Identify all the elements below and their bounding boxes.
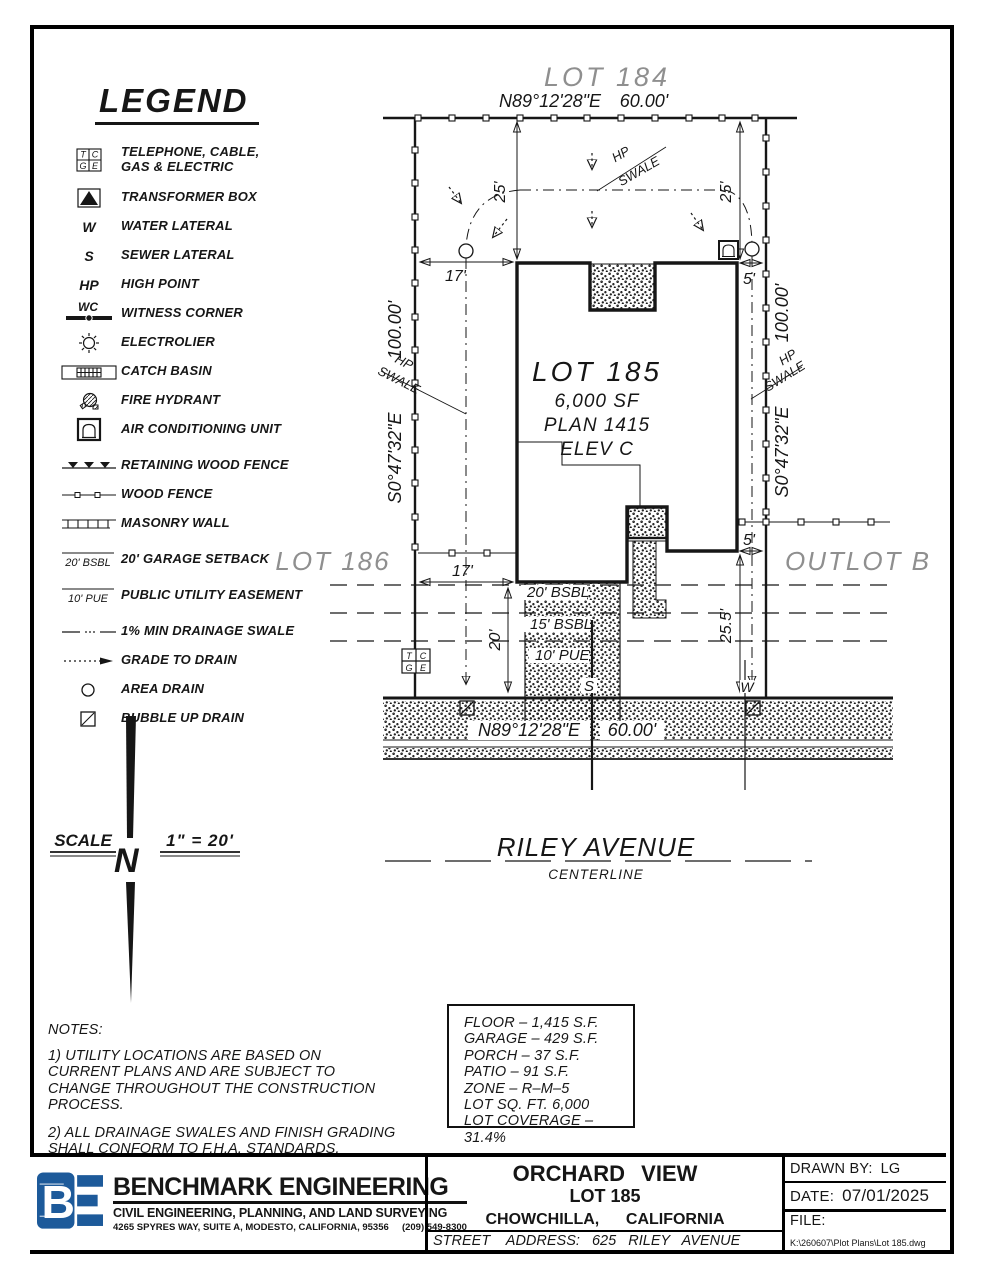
pue-icon: 10' PUE — [57, 583, 121, 609]
stat-lot-sqft: LOT SQ. FT. 6,000 — [464, 1097, 633, 1113]
outlot-b-label: OUTLOT B — [785, 546, 931, 576]
project-block: ORCHARD VIEW LOT 185 CHOWCHILLA, CALIFOR… — [425, 1157, 785, 1250]
elev-label: ELEV C — [560, 439, 634, 460]
dim-20: 20' — [487, 629, 504, 652]
tcge-utility-box: T C G E — [402, 649, 430, 673]
area-drain-icon — [57, 677, 121, 703]
masonry-wall-icon — [57, 511, 121, 537]
legend-item: MASONRY WALL — [57, 509, 357, 538]
note-1: 1) UTILITY LOCATIONS ARE BASED ON CURREN… — [48, 1048, 396, 1113]
grade-to-drain-arrows — [449, 153, 703, 237]
centerline-label: CENTERLINE — [548, 867, 644, 882]
project-name: ORCHARD VIEW — [428, 1161, 782, 1187]
lot-185-label: LOT 185 — [532, 356, 662, 387]
drawn-by-value: LG — [881, 1161, 901, 1177]
date-value: 07/01/2025 — [842, 1186, 929, 1206]
dim-25-5: 25.5' — [718, 608, 735, 644]
svg-text:T: T — [80, 150, 87, 160]
ac-unit-icon — [57, 416, 121, 444]
legend-item: WC WITNESS CORNER — [57, 299, 357, 328]
scale-value: 1" = 20' — [166, 831, 234, 850]
pue10-label: 10' PUE — [535, 647, 591, 664]
stat-garage: GARAGE – 429 S.F. — [464, 1031, 633, 1047]
svg-text:20' BSBL: 20' BSBL — [64, 557, 111, 569]
file-row: FILE: K:\260607\Plot Plans\Lot 185.dwg — [785, 1212, 946, 1250]
drainage-swale-icon — [57, 619, 121, 645]
legend-item: TRANSFORMER BOX — [57, 183, 357, 212]
date-label: DATE: — [790, 1188, 834, 1205]
svg-text:E: E — [420, 663, 427, 673]
stat-porch: PORCH – 37 S.F. — [464, 1048, 633, 1064]
scale-block: SCALE 1" = 20' N — [50, 716, 240, 1003]
water-label: W — [740, 679, 755, 695]
legend-item: WOOD FENCE — [57, 480, 357, 509]
legend-item: 20' BSBL 20' GARAGE SETBACK — [57, 545, 357, 574]
firm-block: B BENCHMARK ENGINEERING CIVIL ENGINEERIN… — [30, 1157, 425, 1250]
project-lot: LOT 185 — [428, 1187, 782, 1207]
bearing-left: S0°47'32"E — [385, 411, 405, 503]
legend-item: AREA DRAIN — [57, 675, 357, 704]
scale-label: SCALE — [54, 831, 112, 850]
benchmark-logo-icon: B — [37, 1171, 103, 1236]
ac-unit-symbol — [719, 241, 738, 259]
north-arrow-icon: N — [114, 716, 140, 1003]
date-row: DATE: 07/01/2025 — [785, 1183, 946, 1212]
bsbl20-label: 20' BSBL — [526, 584, 589, 601]
project-city: CHOWCHILLA, CALIFORNIA — [428, 1211, 782, 1230]
dim-5-bottom: 5' — [743, 532, 756, 549]
legend-item: T C G E TELEPHONE, CABLE, GAS & ELECTRIC — [57, 137, 357, 183]
svg-text:C: C — [92, 150, 99, 160]
hp-label: HP — [609, 143, 632, 165]
bsbl15-label: 15' BSBL — [530, 616, 592, 633]
svg-text:G: G — [79, 161, 86, 171]
bearing-bottom: N89°12'28"E — [478, 720, 581, 740]
legend-item: AIR CONDITIONING UNIT — [57, 415, 357, 444]
porch — [628, 507, 667, 538]
legend-item: GRADE TO DRAIN — [57, 646, 357, 675]
legend-item: RETAINING WOOD FENCE — [57, 451, 357, 480]
side-right: 100.00' — [772, 283, 792, 342]
svg-text:C: C — [420, 651, 427, 661]
svg-text:G: G — [405, 663, 412, 673]
title-block: B BENCHMARK ENGINEERING CIVIL ENGINEERIN… — [30, 1153, 946, 1250]
dim-17-top: 17' — [445, 268, 467, 285]
drawn-by-row: DRAWN BY: LG — [785, 1157, 946, 1183]
stat-coverage: LOT COVERAGE – 31.4% — [464, 1113, 633, 1146]
legend-item: CATCH BASIN — [57, 357, 357, 386]
firm-address: 4265 SPYRES WAY, SUITE A, MODESTO, CALIF… — [113, 1222, 467, 1233]
drawn-by-label: DRAWN BY: — [790, 1161, 873, 1177]
electrolier-icon — [57, 330, 121, 356]
stat-floor: FLOOR – 1,415 S.F. — [464, 1015, 633, 1031]
dim-5-top: 5' — [743, 271, 756, 288]
wood-fence-icon — [57, 482, 121, 508]
firm-tagline: CIVIL ENGINEERING, PLANNING, AND LAND SU… — [113, 1206, 467, 1220]
bearing-right: S0°47'32"E — [772, 405, 792, 497]
file-label: FILE: — [790, 1213, 826, 1229]
bubble-up-drain-icon — [57, 706, 121, 732]
svg-text:10' PUE: 10' PUE — [68, 593, 109, 605]
plot-plan-page: { "legend": { "title": "LEGEND", "sym": … — [0, 0, 984, 1279]
lot-stats-box: FLOOR – 1,415 S.F. GARAGE – 429 S.F. POR… — [447, 1004, 635, 1128]
plan-num-label: PLAN 1415 — [544, 415, 650, 436]
legend-item: HP HIGH POINT — [57, 270, 357, 299]
notes-title: NOTES: — [48, 1022, 396, 1038]
legend-item: ELECTROLIER — [57, 328, 357, 357]
stat-zone: ZONE – R–M–5 — [464, 1081, 633, 1097]
garage-setback-icon: 20' BSBL — [57, 547, 121, 573]
catch-basin-icon — [57, 359, 121, 385]
sewer-lateral-icon: S — [57, 243, 121, 269]
water-lateral-icon: W — [57, 214, 121, 240]
dim-25-left: 25' — [492, 181, 509, 204]
legend-item: S SEWER LATERAL — [57, 241, 357, 270]
frontage-top: 60.00' — [620, 91, 669, 111]
sewer-label: S — [584, 678, 594, 695]
bearing-top: N89°12'28"E — [499, 91, 602, 111]
witness-corner-icon: WC — [57, 300, 121, 328]
project-street-address: STREET ADDRESS: 625 RILEY AVENUE — [428, 1230, 782, 1250]
area-drain — [745, 242, 759, 256]
retaining-wood-fence-icon — [57, 453, 121, 479]
street-name: RILEY AVENUE — [497, 832, 695, 862]
legend-item: W WATER LATERAL — [57, 212, 357, 241]
stat-patio: PATIO – 91 S.F. — [464, 1064, 633, 1080]
legend-item: 1% MIN DRAINAGE SWALE — [57, 617, 357, 646]
north-letter: N — [114, 842, 140, 880]
tcge-icon: T C G E — [57, 145, 121, 175]
legend-title: LEGEND — [95, 82, 259, 125]
walkway — [633, 541, 666, 618]
firm-name: BENCHMARK ENGINEERING — [113, 1174, 467, 1204]
svg-text:E: E — [92, 161, 99, 171]
lot-area-label: 6,000 SF — [554, 391, 639, 412]
meta-block: DRAWN BY: LG DATE: 07/01/2025 FILE: K:\2… — [785, 1157, 946, 1250]
patio — [591, 264, 654, 309]
fire-hydrant-icon — [57, 388, 121, 414]
svg-text:HP: HP — [79, 277, 99, 293]
file-path: K:\260607\Plot Plans\Lot 185.dwg — [790, 1238, 926, 1248]
legend-item: 10' PUE PUBLIC UTILITY EASEMENT — [57, 581, 357, 610]
frontage-bottom: 60.00' — [608, 720, 657, 740]
dim-25-right: 25' — [718, 181, 735, 204]
legend-item: BUBBLE UP DRAIN — [57, 704, 357, 733]
legend-item: FIRE HYDRANT — [57, 386, 357, 415]
side-left: 100.00' — [385, 300, 405, 359]
legend: LEGEND T C G E TELEPHONE, CABLE, GAS & E… — [57, 82, 357, 733]
lot-184-label: LOT 184 — [544, 62, 670, 92]
high-point-icon: HP — [57, 272, 121, 298]
svg-text:W: W — [82, 219, 97, 235]
svg-text:WC: WC — [78, 300, 98, 314]
grade-to-drain-icon — [57, 648, 121, 674]
dim-17-bottom: 17' — [452, 563, 474, 580]
notes: NOTES: 1) UTILITY LOCATIONS ARE BASED ON… — [48, 1022, 396, 1170]
transformer-box-icon — [57, 185, 121, 211]
area-drain — [459, 244, 473, 258]
svg-text:S: S — [84, 248, 94, 264]
